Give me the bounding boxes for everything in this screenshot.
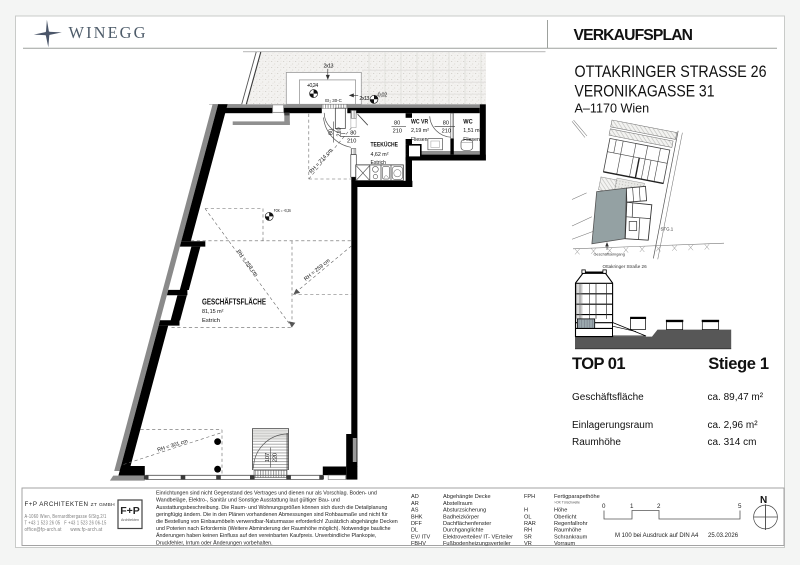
svg-text:VERKAUFSPLAN: VERKAUFSPLAN <box>574 27 694 44</box>
svg-text:4,62 m²: 4,62 m² <box>371 152 389 158</box>
svg-text:ca. 89,47 m²: ca. 89,47 m² <box>708 392 764 403</box>
svg-text:RH: RH <box>524 528 532 534</box>
svg-text:H: H <box>524 508 528 514</box>
svg-text:2: 2 <box>657 503 661 510</box>
svg-text:25.03.2026: 25.03.2026 <box>708 533 739 539</box>
svg-text:OL: OL <box>524 514 531 520</box>
svg-text:Geschäftsfläche: Geschäftsfläche <box>572 392 644 403</box>
svg-text:Höhe: Höhe <box>554 508 567 514</box>
svg-text:Oberlicht: Oberlicht <box>554 514 577 520</box>
svg-text:F+P ARCHITEKTEN ZT GMBH: F+P ARCHITEKTEN ZT GMBH <box>25 501 116 508</box>
svg-text:DFF: DFF <box>411 521 422 527</box>
svg-text:Raumhöhe: Raumhöhe <box>572 437 621 448</box>
svg-text:VERONIKAGASSE 31: VERONIKAGASSE 31 <box>575 82 715 101</box>
svg-text:2,19 m²: 2,19 m² <box>411 128 429 134</box>
svg-text:AR: AR <box>411 501 419 507</box>
svg-text:A-1060 Wien, Bernardtbergasse: A-1060 Wien, Bernardtbergasse 6/Stg.2/1 <box>25 514 107 520</box>
svg-text:210: 210 <box>336 127 342 136</box>
svg-text:T +43 1 523 26 05 F +43 1 52: T +43 1 523 26 05 F +43 1 523 26 06-15 <box>25 521 107 527</box>
svg-text:WINEGG: WINEGG <box>69 23 148 42</box>
svg-text:Fliesen: Fliesen <box>463 137 480 143</box>
svg-text:OTTAKRINGER STRASSE 26: OTTAKRINGER STRASSE 26 <box>575 62 767 81</box>
svg-text:Druckfehler, Irrtum oder Änder: Druckfehler, Irrtum oder Änderungen vorb… <box>156 539 273 546</box>
svg-text:BHK: BHK <box>411 514 423 520</box>
svg-text:0: 0 <box>602 503 606 510</box>
svg-text:Estrich: Estrich <box>202 318 220 324</box>
svg-text:5: 5 <box>738 503 742 510</box>
svg-text:FOK = +0,26: FOK = +0,26 <box>274 208 291 213</box>
svg-text:M 100 bei Ausdruck auf DIN A4: M 100 bei Ausdruck auf DIN A4 <box>615 533 699 539</box>
svg-text:210: 210 <box>442 129 451 135</box>
svg-text:EI₂ 30-C: EI₂ 30-C <box>325 98 342 103</box>
svg-text:Absturzsicherung: Absturzsicherung <box>443 508 486 514</box>
svg-text:80: 80 <box>394 121 400 127</box>
svg-text:Raumhöhe: Raumhöhe <box>554 528 581 534</box>
svg-text:Badheizkörper: Badheizkörper <box>443 514 479 520</box>
svg-text:Estrich: Estrich <box>371 160 387 166</box>
svg-text:und Poterien nach Erfordernis: und Poterien nach Erfordernis (Weitere A… <box>156 526 391 532</box>
svg-text:Abstellraum: Abstellraum <box>443 501 473 507</box>
svg-text:office@fp-arch.at www.fp-: office@fp-arch.at www.fp-arch.at <box>25 527 103 533</box>
svg-text:Einrichtungen sind nicht Gegen: Einrichtungen sind nicht Gegenstand des … <box>156 491 377 497</box>
svg-text:Regenfallrohr: Regenfallrohr <box>554 521 588 527</box>
svg-text:STG.1: STG.1 <box>661 227 674 232</box>
svg-text:2x13: 2x13 <box>359 96 369 102</box>
svg-text:80: 80 <box>328 129 334 135</box>
svg-text:Schrankraum: Schrankraum <box>554 534 588 540</box>
svg-text:N: N <box>760 495 767 506</box>
svg-text:1: 1 <box>630 503 634 510</box>
svg-text:AD: AD <box>411 494 419 500</box>
svg-text:Fliesen: Fliesen <box>411 137 428 143</box>
svg-text:VR: VR <box>524 541 532 547</box>
svg-text:210: 210 <box>393 129 402 135</box>
svg-text:geringfügig ändern. Die in den: geringfügig ändern. Die in den Plänen vo… <box>156 512 388 518</box>
svg-text:Ottakringer Straße 26: Ottakringer Straße 26 <box>603 264 648 269</box>
svg-text:WC VR: WC VR <box>411 118 429 125</box>
svg-text:EV/ ITV: EV/ ITV <box>411 534 431 540</box>
svg-text:AS: AS <box>411 508 419 514</box>
svg-text:ca. 314 cm: ca. 314 cm <box>708 437 757 448</box>
svg-text:Durchganglichte: Durchganglichte <box>443 528 483 534</box>
svg-text:Wandbeläge, Elektro-, Sanitär: Wandbeläge, Elektro-, Sanitär und Sonsti… <box>156 498 340 504</box>
svg-text:ca. 2,96 m²: ca. 2,96 m² <box>708 420 759 431</box>
svg-text:2x13: 2x13 <box>324 64 334 70</box>
svg-text:220: 220 <box>273 453 279 462</box>
svg-text:Einlagerungsraum: Einlagerungsraum <box>572 420 653 431</box>
svg-text:DL: DL <box>411 528 418 534</box>
svg-text:F+P: F+P <box>120 505 140 517</box>
svg-text:Elektroverteiler/ IT- VErteile: Elektroverteiler/ IT- VErteiler <box>443 534 513 540</box>
svg-text:RAR: RAR <box>524 521 536 527</box>
svg-text:Ausstattungsbeschreibung. Die: Ausstattungsbeschreibung. Die Raum- und … <box>156 505 387 511</box>
svg-text:+0,24: +0,24 <box>307 83 319 89</box>
svg-text:SR: SR <box>524 534 532 540</box>
svg-text:80: 80 <box>443 120 449 126</box>
svg-text:107: 107 <box>265 453 271 462</box>
svg-text:WC: WC <box>463 118 473 125</box>
svg-text:Vorraum: Vorraum <box>554 541 575 547</box>
svg-text:Fertigparapethöhe: Fertigparapethöhe <box>554 494 600 500</box>
svg-text:>OK Türschwelle: >OK Türschwelle <box>554 501 580 505</box>
svg-text:Änderungen haben keinen Einflu: Änderungen haben keinen Einfluss auf den… <box>156 532 376 539</box>
svg-text:TOP 01: TOP 01 <box>572 355 626 373</box>
svg-text:Abgehängte Decke: Abgehängte Decke <box>443 494 491 500</box>
svg-text:Architekten: Architekten <box>121 518 139 522</box>
svg-text:TEEKÜCHE: TEEKÜCHE <box>371 141 399 148</box>
svg-text:A–1170 Wien: A–1170 Wien <box>575 102 650 116</box>
svg-text:FPH: FPH <box>524 494 535 500</box>
svg-text:Dachflächenfenster: Dachflächenfenster <box>443 521 491 527</box>
svg-text:Geschäftseingang: Geschäftseingang <box>594 252 625 257</box>
svg-text:Fußbodenheizungsverteiler: Fußbodenheizungsverteiler <box>443 541 511 547</box>
svg-text:210: 210 <box>347 139 356 145</box>
svg-text:Stiege 1: Stiege 1 <box>708 355 769 373</box>
svg-text:1,51 m²: 1,51 m² <box>463 128 481 134</box>
svg-text:GESCHÄFTSFLÄCHE: GESCHÄFTSFLÄCHE <box>202 296 266 306</box>
svg-text:80: 80 <box>350 131 356 137</box>
svg-text:FBHV: FBHV <box>411 541 426 547</box>
svg-text:81,15 m²: 81,15 m² <box>202 309 224 315</box>
svg-text:die Bestellung von Einbaumöbel: die Bestellung von Einbaumöbeln verwendb… <box>156 519 398 525</box>
